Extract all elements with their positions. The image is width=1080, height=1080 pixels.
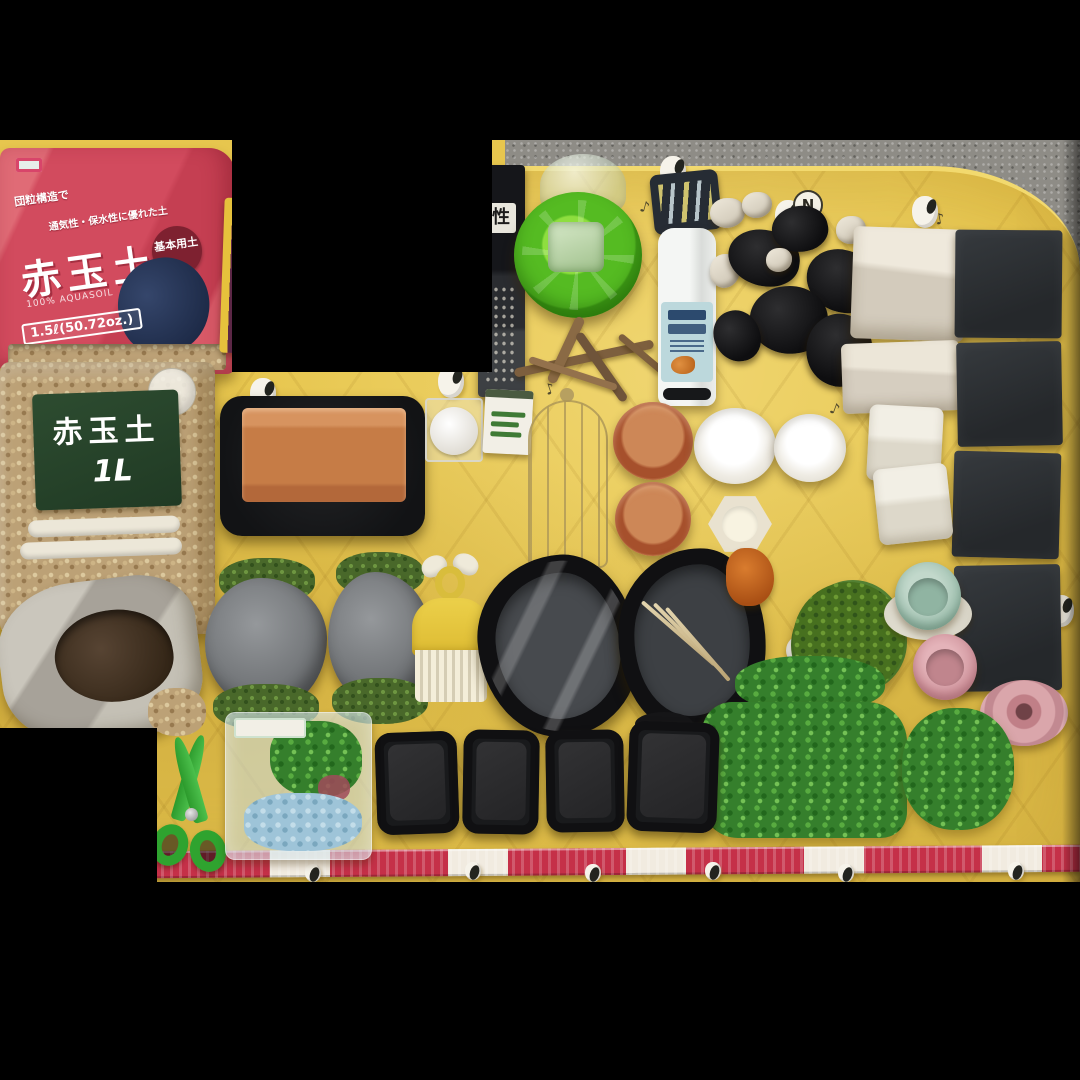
akadama-red-bag: 団粒構造で 通気性・保水性に優れた土 基本用土 赤玉土 100% AQUASOI… <box>0 148 235 374</box>
snoopy-motif <box>585 864 601 882</box>
green-bag-label: 赤玉土 1L <box>32 389 182 510</box>
feeder-bottle-neck <box>548 222 604 272</box>
black-tray <box>220 396 425 536</box>
snoopy-motif <box>838 864 854 882</box>
comb-teeth <box>415 650 487 702</box>
clear-box <box>425 398 483 462</box>
plant-round <box>902 708 1014 830</box>
snoopy-motif <box>305 864 321 882</box>
snoopy-motif <box>1008 862 1024 880</box>
blue-cup <box>895 562 961 630</box>
right-edge-shadow <box>1062 140 1080 882</box>
comb-handle-ring <box>435 566 465 600</box>
white-square-dish-2 <box>872 462 954 545</box>
bag-label <box>234 718 306 738</box>
scissor-pivot <box>185 808 198 821</box>
censor-block-bottom-left <box>0 728 157 882</box>
snoopy-motif <box>705 862 721 880</box>
orange-ornament <box>726 548 774 606</box>
green-water-feeder <box>514 192 642 318</box>
green-bag-title: 赤玉土 <box>33 403 180 452</box>
snoopy-motif <box>465 862 481 880</box>
terracotta-tile <box>242 408 406 502</box>
white-dish-2 <box>774 414 846 482</box>
pink-cup <box>913 634 977 700</box>
white-round-tub <box>430 407 478 455</box>
photo-canvas: ♪ ♪ ♪ ♪ N 団粒構造で 通気性・保水性に優れた土 基本用土 赤玉土 10… <box>0 0 1080 1080</box>
feeding-dish-4 <box>626 720 720 833</box>
wire-cage-ornament <box>528 400 608 568</box>
green-bag-size: 1L <box>34 451 181 491</box>
red-bag-text-line1: 団粒構造で <box>13 186 70 209</box>
green-scissors <box>152 732 234 882</box>
slate-tile-3 <box>952 451 1062 560</box>
scissor-handle <box>186 827 230 876</box>
seed-packet <box>482 389 533 455</box>
moss-rock-1 <box>205 558 333 733</box>
censor-block-top <box>232 140 492 372</box>
bagged-aquarium-plant <box>225 712 372 860</box>
white-dish-1 <box>694 408 776 484</box>
plant-mat-large <box>702 702 907 838</box>
white-square-tray <box>850 226 967 342</box>
feeding-dish-1 <box>374 731 460 836</box>
terracotta-saucer-2 <box>615 482 691 556</box>
terracotta-saucer-1 <box>613 402 693 480</box>
feeding-dish-3 <box>545 729 625 832</box>
photograph: ♪ ♪ ♪ ♪ N 団粒構造で 通気性・保水性に優れた土 基本用土 赤玉土 10… <box>0 140 1080 882</box>
slate-tile-1 <box>955 230 1063 339</box>
green-bag-text-pill <box>28 515 181 537</box>
red-bag-text-line2: 通気性・保水性に優れた土 <box>48 202 169 234</box>
brand-logo <box>16 158 42 172</box>
feeding-dish-2 <box>462 729 540 834</box>
spray-bottle <box>658 228 716 406</box>
slate-tile-2 <box>956 341 1063 447</box>
green-bag-text-pill <box>20 537 182 560</box>
red-bag-size: 1.5ℓ(50.72oz.) <box>21 308 142 345</box>
label-animal-art <box>671 356 695 374</box>
blue-gravel <box>244 793 362 851</box>
white-rect-tray <box>841 340 961 414</box>
bottle-label <box>661 302 713 382</box>
